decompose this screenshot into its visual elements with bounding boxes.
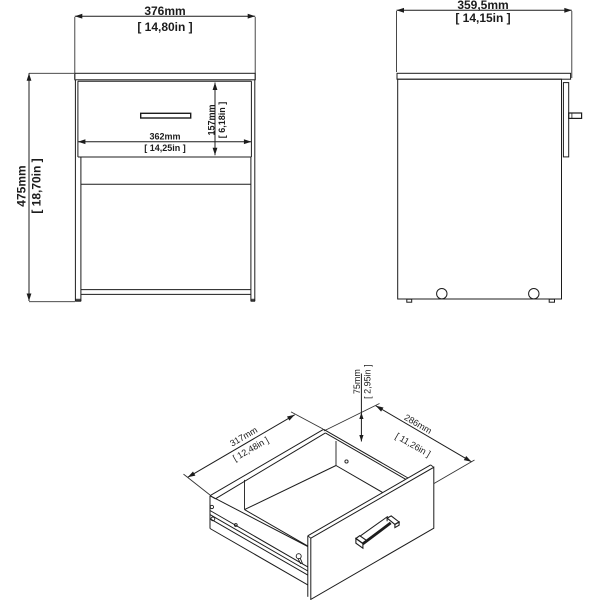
svg-text:376mm: 376mm bbox=[144, 4, 185, 18]
svg-text:[ 18,70in ]: [ 18,70in ] bbox=[30, 158, 44, 213]
svg-text:[ 14,15in ]: [ 14,15in ] bbox=[455, 11, 510, 25]
svg-text:[ 2,95in ]: [ 2,95in ] bbox=[363, 364, 373, 399]
svg-text:[ 14,80in ]: [ 14,80in ] bbox=[137, 20, 192, 34]
svg-text:[ 14,25in ]: [ 14,25in ] bbox=[144, 143, 186, 153]
svg-text:75mm: 75mm bbox=[352, 369, 362, 394]
svg-text:362mm: 362mm bbox=[149, 132, 180, 142]
svg-text:157mm: 157mm bbox=[206, 104, 216, 135]
svg-text:[ 6,18in ]: [ 6,18in ] bbox=[217, 102, 227, 139]
svg-text:475mm: 475mm bbox=[15, 165, 29, 206]
